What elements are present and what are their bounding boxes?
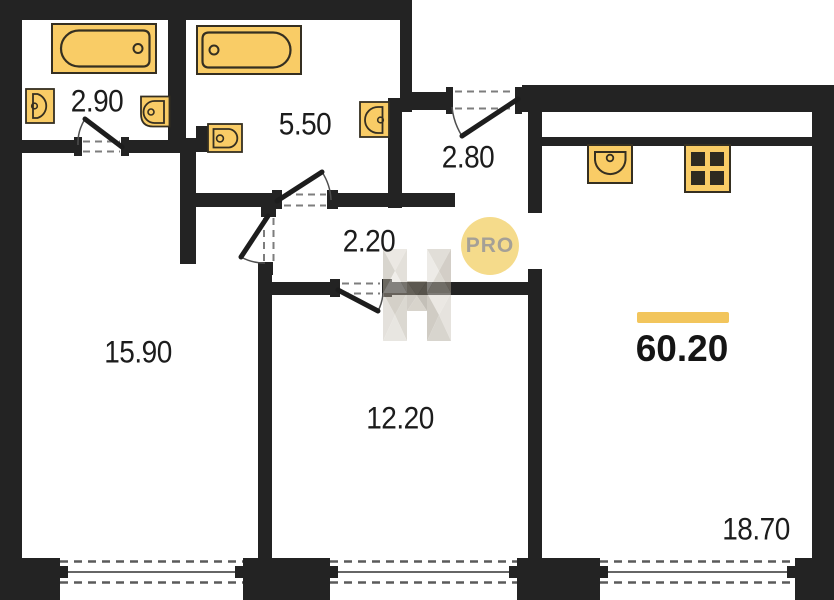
door-opening	[342, 284, 380, 294]
wall-living-west-lower	[528, 269, 542, 558]
pro-badge: PRO	[461, 217, 519, 275]
wall-bottom-pillar	[795, 558, 834, 600]
door-jamb	[327, 190, 338, 209]
wall-room-middle-west	[258, 274, 272, 558]
door-swing-icon	[85, 119, 122, 147]
windows	[60, 562, 795, 583]
wall-kitchen-thin	[542, 137, 812, 146]
wall-room-left-nook	[180, 138, 196, 264]
bathtub-icon	[197, 26, 301, 74]
wall-outer-left	[0, 0, 22, 600]
wall-corridor-top-east	[338, 193, 455, 207]
area-label-bathroom-small: 2.90	[71, 83, 124, 119]
door-arc	[378, 293, 383, 311]
area-label-bathroom-large: 5.50	[279, 106, 332, 142]
wall-bottom-pillar	[517, 558, 600, 600]
floor-plan: 2.90 5.50 2.80 2.20 15.90 12.20 18.70 60…	[0, 0, 834, 600]
window-icon	[600, 562, 795, 583]
toilet-icon	[26, 89, 54, 123]
wall-top-band	[522, 85, 834, 112]
wall-outer-right	[812, 85, 834, 600]
kitchen-sink-icon	[588, 145, 632, 183]
door-jamb	[258, 262, 273, 275]
wall-hall-west	[388, 98, 402, 208]
total-area-label: 60.20	[636, 328, 729, 370]
wall-bathroom-small-bottom-west	[22, 140, 82, 153]
door-opening	[284, 195, 326, 206]
area-label-room-left: 15.90	[104, 334, 172, 370]
wall-entrance-west	[410, 92, 450, 110]
window-icon	[60, 562, 243, 583]
area-label-entrance-hall: 2.80	[442, 139, 495, 175]
door-swing-icon	[462, 99, 518, 136]
window-icon	[330, 562, 517, 583]
wall-living-west-upper	[528, 85, 542, 213]
wall-bottom-pillar	[0, 558, 60, 600]
wall-corridor-top-west	[196, 193, 273, 207]
wall-outer-top	[0, 0, 412, 20]
sink-icon	[208, 124, 242, 152]
h-logo-watermark-icon	[383, 249, 451, 341]
wall-corridor-bottom-west	[272, 282, 332, 295]
toilet-icon	[360, 102, 389, 137]
floor-plan-drawing	[0, 0, 834, 600]
wall-bottom-pillar	[243, 558, 330, 600]
area-label-corridor: 2.20	[343, 223, 396, 259]
wall-bathroom-small-bottom-east	[121, 140, 188, 153]
area-label-room-middle: 12.20	[366, 400, 434, 436]
door-arc	[452, 107, 462, 136]
bathtub-icon	[52, 24, 156, 73]
stove-4-burner-icon	[685, 145, 730, 192]
sink-backing	[196, 126, 209, 152]
door-swing-icon	[277, 172, 322, 201]
sink-icon	[141, 97, 170, 127]
wall-bathrooms-divider	[168, 20, 186, 142]
total-area-accent-bar	[637, 312, 729, 323]
area-label-kitchen-living: 18.70	[722, 511, 790, 547]
